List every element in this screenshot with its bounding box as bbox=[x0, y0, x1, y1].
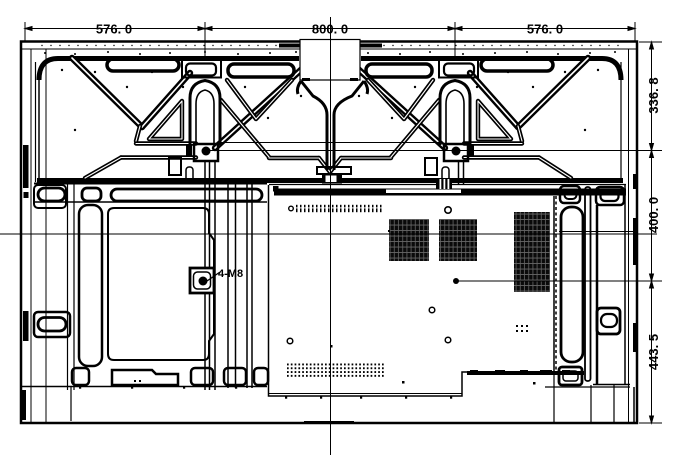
svg-text:576. 0: 576. 0 bbox=[527, 22, 563, 37]
svg-text:400. 0: 400. 0 bbox=[646, 197, 661, 233]
svg-text:576. 0: 576. 0 bbox=[96, 22, 132, 37]
svg-text:443. 5: 443. 5 bbox=[646, 334, 661, 370]
svg-text:336. 8: 336. 8 bbox=[646, 77, 661, 113]
svg-text:4-M8: 4-M8 bbox=[218, 268, 243, 280]
